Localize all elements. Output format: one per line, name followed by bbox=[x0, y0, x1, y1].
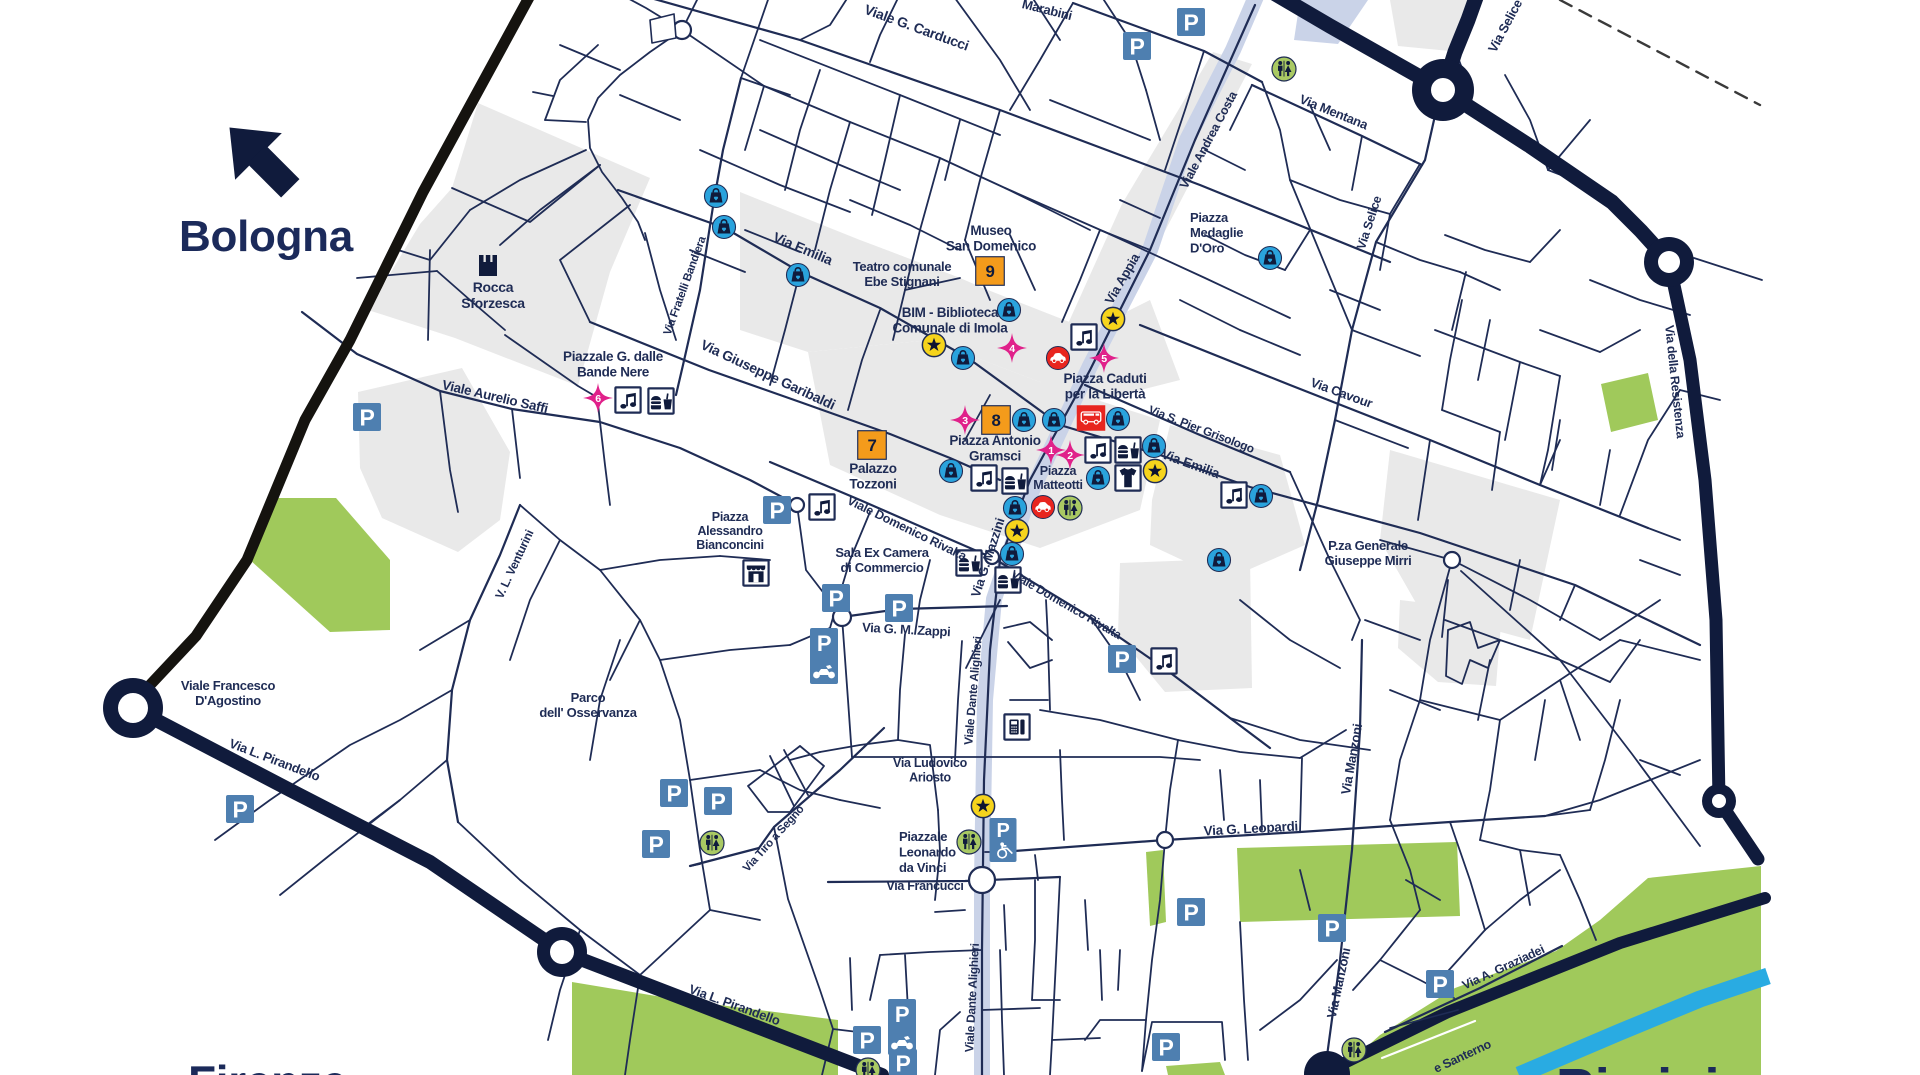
svg-text:BIM - Biblioteca: BIM - Biblioteca bbox=[902, 305, 999, 320]
svg-text:P: P bbox=[710, 789, 725, 815]
svg-text:2: 2 bbox=[1067, 450, 1073, 462]
svg-text:Sala Ex Camera: Sala Ex Camera bbox=[835, 545, 929, 560]
svg-text:Museo: Museo bbox=[970, 223, 1011, 238]
svg-text:5: 5 bbox=[1101, 353, 1107, 365]
svg-text:San Domenico: San Domenico bbox=[946, 239, 1036, 254]
svg-text:Bologna: Bologna bbox=[179, 212, 354, 261]
svg-text:P: P bbox=[996, 820, 1009, 842]
svg-text:Ebe Stignani: Ebe Stignani bbox=[864, 274, 939, 289]
svg-text:P: P bbox=[891, 596, 906, 622]
svg-text:Piazza: Piazza bbox=[1190, 210, 1229, 225]
svg-text:Gramsci: Gramsci bbox=[969, 449, 1021, 464]
svg-text:Parco: Parco bbox=[571, 690, 606, 705]
svg-text:P: P bbox=[666, 781, 681, 807]
svg-text:P: P bbox=[1129, 34, 1144, 60]
svg-text:P: P bbox=[895, 1002, 909, 1027]
svg-text:Medaglie: Medaglie bbox=[1190, 225, 1243, 240]
svg-text:Piazzale G. dalle: Piazzale G. dalle bbox=[563, 349, 664, 364]
svg-text:Sforzesca: Sforzesca bbox=[461, 295, 525, 311]
svg-text:D'Agostino: D'Agostino bbox=[195, 693, 261, 708]
svg-text:Bianconcini: Bianconcini bbox=[696, 538, 764, 552]
svg-text:P: P bbox=[648, 832, 663, 858]
svg-text:P: P bbox=[1183, 900, 1198, 926]
svg-text:Piazza Caduti: Piazza Caduti bbox=[1063, 371, 1146, 386]
svg-text:Tozzoni: Tozzoni bbox=[849, 477, 896, 492]
svg-text:Via Ludovico: Via Ludovico bbox=[893, 756, 968, 770]
svg-text:3: 3 bbox=[962, 415, 968, 427]
svg-text:Rocca: Rocca bbox=[473, 279, 514, 295]
svg-text:dell' Osservanza: dell' Osservanza bbox=[539, 705, 637, 720]
svg-text:Viale Francesco: Viale Francesco bbox=[181, 678, 276, 693]
svg-text:P: P bbox=[859, 1028, 874, 1054]
svg-text:P: P bbox=[1114, 647, 1129, 673]
svg-text:Piazza: Piazza bbox=[1040, 464, 1078, 478]
svg-text:da Vinci: da Vinci bbox=[899, 860, 946, 875]
svg-text:Firenze: Firenze bbox=[188, 1056, 347, 1075]
svg-text:Giuseppe Mirri: Giuseppe Mirri bbox=[1325, 553, 1412, 568]
svg-text:P: P bbox=[1158, 1035, 1173, 1061]
svg-text:D'Oro: D'Oro bbox=[1190, 240, 1224, 255]
svg-text:P.za Generale: P.za Generale bbox=[1328, 538, 1408, 553]
svg-text:Matteotti: Matteotti bbox=[1033, 478, 1082, 492]
svg-text:4: 4 bbox=[1009, 343, 1015, 355]
svg-text:P: P bbox=[828, 586, 843, 612]
svg-text:6: 6 bbox=[595, 393, 601, 405]
svg-text:per la Libertà: per la Libertà bbox=[1065, 387, 1146, 402]
svg-text:Piazzale: Piazzale bbox=[899, 829, 947, 844]
svg-text:1: 1 bbox=[1048, 445, 1054, 457]
svg-text:P: P bbox=[1432, 972, 1447, 998]
svg-text:P: P bbox=[817, 631, 831, 656]
svg-text:Palazzo: Palazzo bbox=[849, 461, 896, 476]
svg-text:Rimini: Rimini bbox=[1556, 1058, 1719, 1075]
svg-text:P: P bbox=[769, 498, 784, 524]
svg-text:P: P bbox=[1183, 10, 1198, 36]
svg-text:P: P bbox=[359, 405, 374, 431]
svg-text:Alessandro: Alessandro bbox=[697, 524, 763, 538]
svg-text:Ariosto: Ariosto bbox=[909, 771, 951, 785]
svg-text:Comunale di Imola: Comunale di Imola bbox=[893, 321, 1009, 336]
svg-text:9: 9 bbox=[985, 262, 994, 281]
svg-text:Via Francucci: Via Francucci bbox=[886, 879, 963, 893]
svg-text:Piazza: Piazza bbox=[712, 510, 750, 524]
svg-text:Bande Nere: Bande Nere bbox=[577, 365, 650, 380]
svg-text:Teatro comunale: Teatro comunale bbox=[853, 259, 952, 274]
svg-text:8: 8 bbox=[991, 411, 1000, 430]
svg-text:P: P bbox=[1324, 916, 1339, 942]
svg-text:7: 7 bbox=[867, 436, 876, 455]
svg-text:Piazza Antonio: Piazza Antonio bbox=[949, 433, 1040, 448]
svg-text:di Commercio: di Commercio bbox=[840, 560, 923, 575]
svg-text:P: P bbox=[232, 797, 247, 823]
svg-text:Leonardo: Leonardo bbox=[899, 845, 956, 860]
